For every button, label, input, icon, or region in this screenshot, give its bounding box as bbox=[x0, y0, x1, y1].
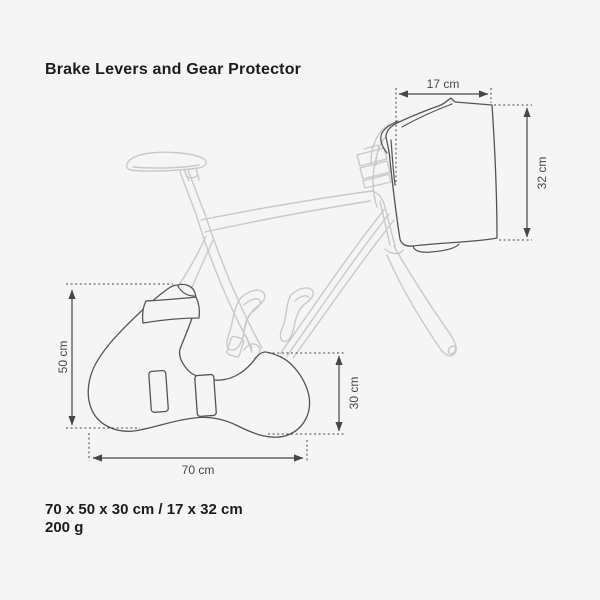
spec-weight-line: 200 g bbox=[45, 519, 243, 537]
gear-protector-cover bbox=[88, 284, 309, 437]
saddle bbox=[127, 152, 207, 181]
fork bbox=[385, 246, 457, 356]
dimension-label-32cm: 32 cm bbox=[535, 157, 549, 190]
dimension-32cm: 32 cm bbox=[494, 105, 549, 240]
dimension-label-70cm: 70 cm bbox=[182, 463, 215, 477]
gear-cover-strap-2 bbox=[195, 374, 217, 416]
crank-detail bbox=[226, 336, 260, 358]
top-tube bbox=[201, 191, 372, 232]
bottle-cage-seat-tube bbox=[227, 290, 265, 350]
brake-lever-cover bbox=[381, 98, 497, 252]
brake-cover-body bbox=[386, 98, 497, 246]
gear-cover-strap-1 bbox=[149, 370, 169, 412]
product-specs: 70 x 50 x 30 cm / 17 x 32 cm 200 g bbox=[45, 501, 243, 537]
dimension-label-50cm: 50 cm bbox=[56, 341, 70, 374]
dimension-label-30cm: 30 cm bbox=[347, 377, 361, 410]
down-tube bbox=[280, 210, 394, 358]
spec-size-line: 70 x 50 x 30 cm / 17 x 32 cm bbox=[45, 501, 243, 519]
seat-post bbox=[180, 170, 204, 214]
dimension-label-17cm: 17 cm bbox=[427, 77, 460, 91]
dimension-70cm: 70 cm bbox=[89, 433, 307, 477]
product-dimension-diagram: Brake Levers and Gear Protector bbox=[0, 0, 600, 600]
